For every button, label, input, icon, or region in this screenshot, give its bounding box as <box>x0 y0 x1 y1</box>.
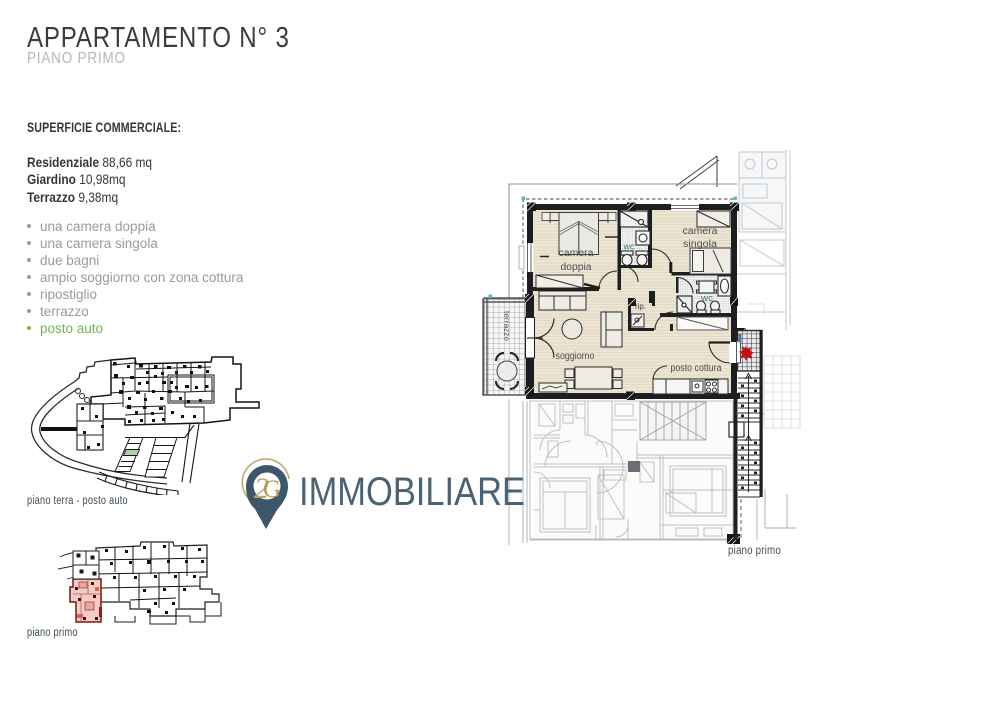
svg-text:wc: wc <box>623 242 635 252</box>
svg-text:singola: singola <box>683 239 717 250</box>
svg-text:posto cottura: posto cottura <box>671 363 722 374</box>
svg-text:camera: camera <box>683 226 718 237</box>
svg-text:IMMOBILIARE: IMMOBILIARE <box>299 470 525 514</box>
svg-text:doppia: doppia <box>561 262 592 273</box>
svg-text:wc: wc <box>700 293 714 303</box>
svg-text:soggiorno: soggiorno <box>556 350 595 362</box>
svg-text:terrazzo: terrazzo <box>503 311 512 341</box>
svg-text:camera: camera <box>559 248 594 259</box>
svg-text:rip.: rip. <box>635 302 646 311</box>
svg-text:G: G <box>263 476 281 503</box>
